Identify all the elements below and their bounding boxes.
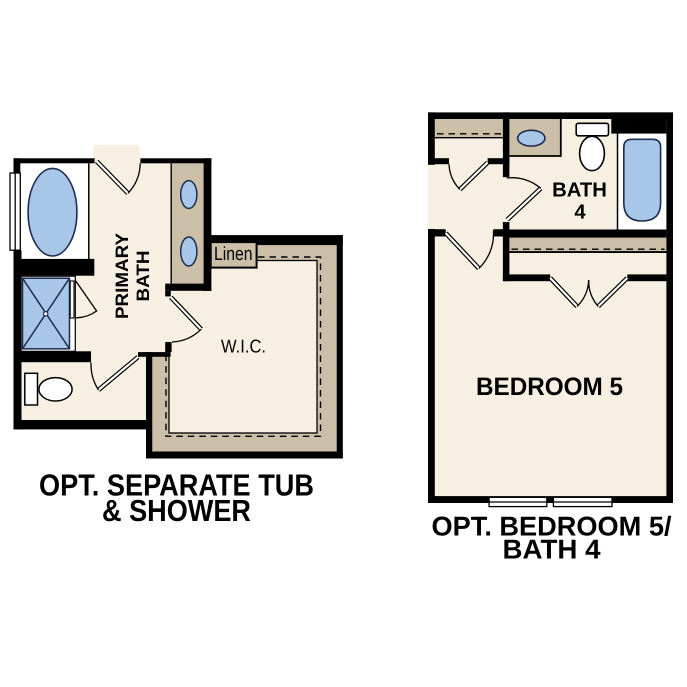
svg-text:BATH 4: BATH 4 <box>503 534 601 565</box>
svg-text:Linen: Linen <box>214 244 253 265</box>
svg-text:4: 4 <box>574 202 586 224</box>
svg-text:& SHOWER: & SHOWER <box>102 494 251 528</box>
svg-text:W.I.C.: W.I.C. <box>221 336 266 357</box>
svg-text:BATH: BATH <box>552 180 607 202</box>
svg-text:BATH: BATH <box>133 251 153 302</box>
svg-text:BEDROOM 5: BEDROOM 5 <box>476 373 623 401</box>
svg-text:PRIMARY: PRIMARY <box>112 233 132 319</box>
